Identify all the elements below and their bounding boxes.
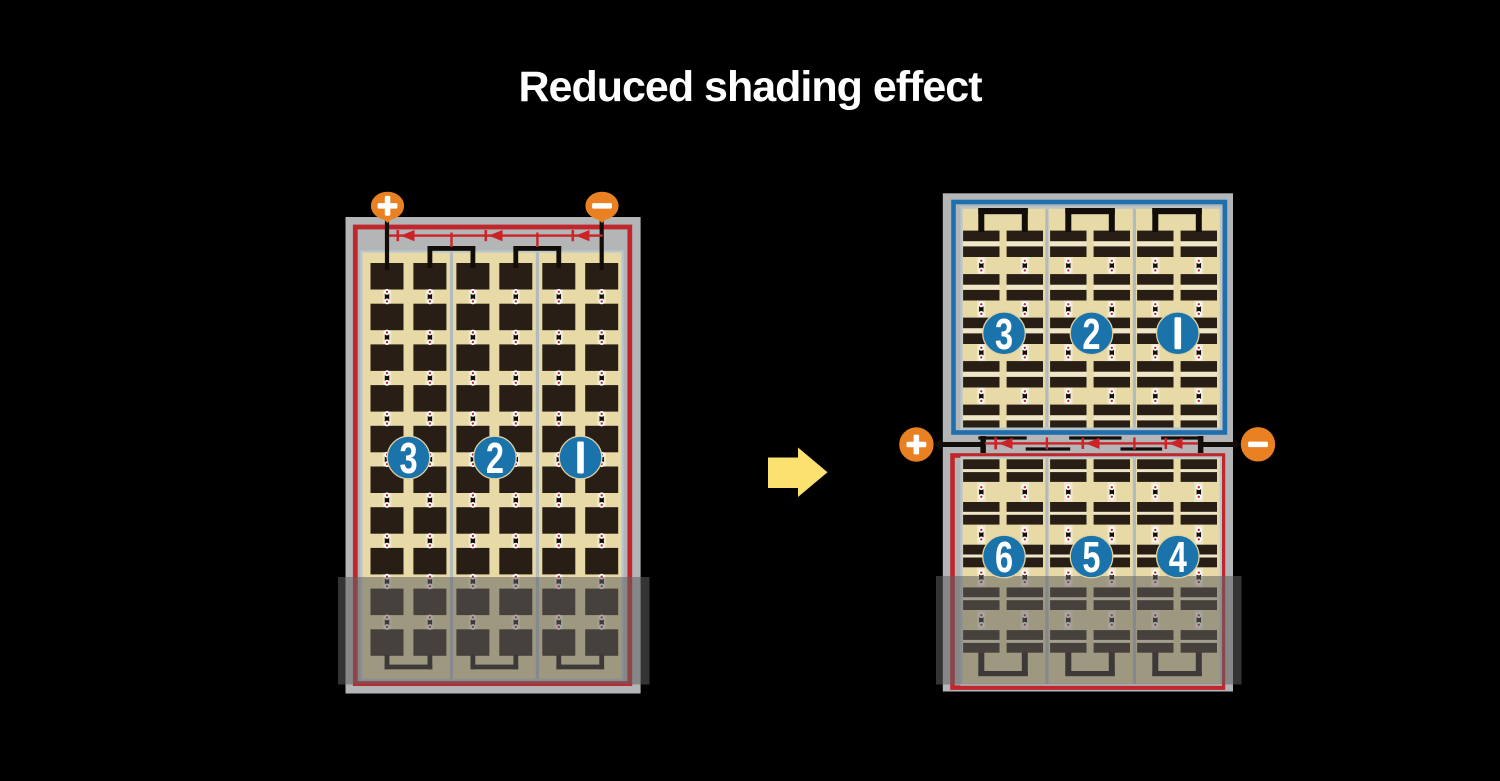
svg-text:5: 5 <box>1082 534 1100 583</box>
svg-text:2: 2 <box>1082 310 1100 359</box>
svg-text:3: 3 <box>399 435 417 484</box>
svg-text:6: 6 <box>995 534 1013 583</box>
svg-text:4: 4 <box>1169 534 1188 583</box>
svg-text:2: 2 <box>486 435 504 484</box>
svg-text:3: 3 <box>995 310 1013 359</box>
svg-text:Reduced shading effect: Reduced shading effect <box>518 63 982 111</box>
